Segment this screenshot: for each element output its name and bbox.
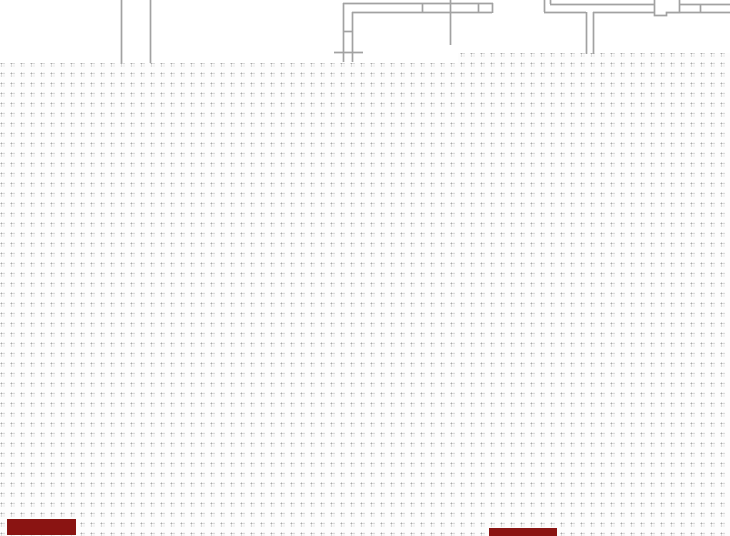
redaction-mask-left xyxy=(7,519,76,535)
app-window xyxy=(0,0,730,536)
wall-linework[interactable] xyxy=(0,0,730,536)
redaction-mask-center xyxy=(489,528,557,536)
